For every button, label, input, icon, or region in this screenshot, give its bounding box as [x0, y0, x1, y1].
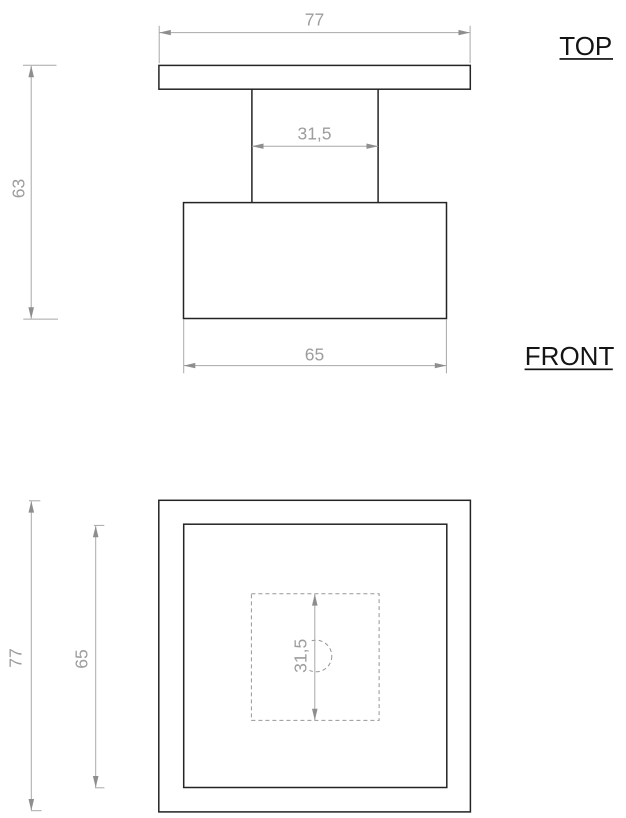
svg-text:77: 77 [305, 10, 324, 30]
svg-text:FRONT: FRONT [525, 341, 615, 371]
svg-text:63: 63 [8, 179, 28, 198]
svg-text:77: 77 [6, 648, 26, 667]
svg-text:31,5: 31,5 [297, 123, 331, 143]
svg-text:65: 65 [305, 344, 324, 364]
svg-text:65: 65 [72, 649, 92, 668]
svg-text:31,5: 31,5 [291, 639, 311, 673]
svg-text:TOP: TOP [559, 31, 612, 61]
